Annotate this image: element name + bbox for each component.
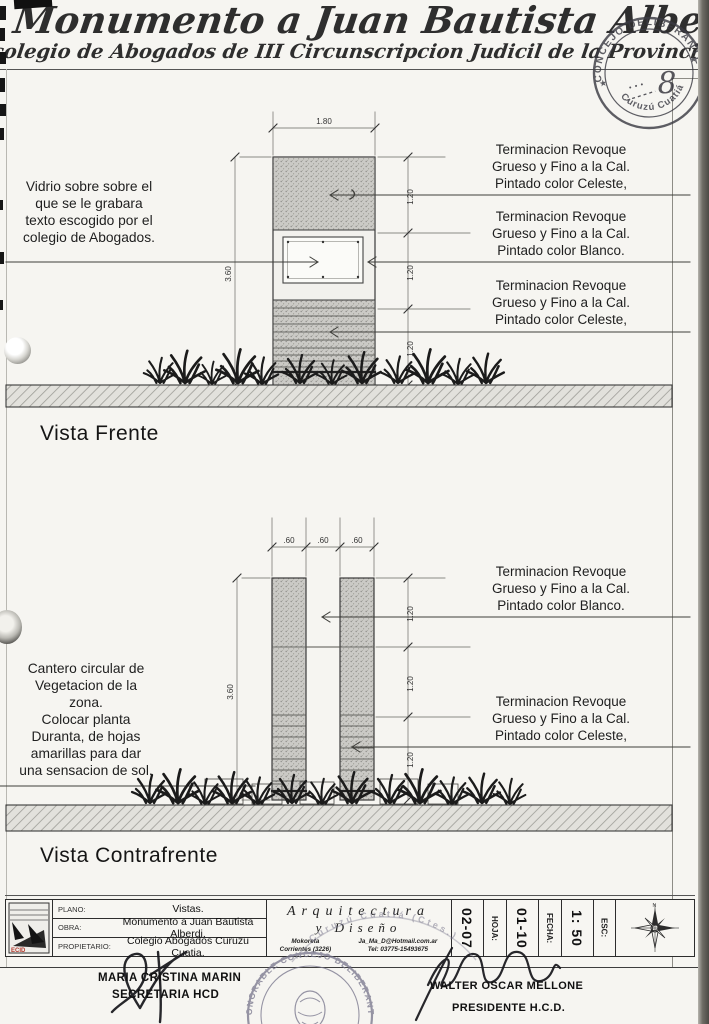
logo-cell: ECID	[6, 900, 52, 956]
scan-edge-mark	[0, 28, 5, 41]
field-label: PLANO:	[52, 905, 110, 914]
back-dim-height: 3.60	[226, 684, 235, 700]
scan-edge-mark	[0, 300, 3, 310]
scan-edge-mark	[0, 200, 3, 210]
back-dim-seg3: 1.20	[406, 752, 415, 768]
back-dim-seg1: 1.20	[406, 606, 415, 622]
scan-edge-mark	[0, 78, 5, 92]
svg-text:Curuzú Cuatiá (Ctes.): Curuzú Cuatiá (Ctes.)	[307, 909, 460, 944]
back-dim-seg2: 1.20	[406, 676, 415, 692]
scale-label: ESC:	[600, 918, 609, 937]
scan-edge-mark	[0, 52, 6, 64]
scan-edge-mark	[0, 252, 4, 264]
svg-text:N: N	[652, 903, 656, 909]
front-top-panel	[274, 158, 375, 230]
front-note-2: Terminacion Revoque Grueso y Fino a la C…	[466, 208, 656, 259]
scan-edge-mark	[0, 104, 6, 116]
back-note-1: Terminacion Revoque Grueso y Fino a la C…	[466, 563, 656, 614]
back-ground-band	[6, 805, 672, 831]
compass-rose-icon: N	[629, 902, 681, 954]
front-dim-height: 3.60	[224, 266, 233, 282]
signature-left-role: SECRETARIA HCD	[112, 989, 219, 1001]
signature-left-name: MARIA CRISTINA MARIN	[98, 972, 241, 984]
compass-cell: N	[615, 900, 694, 956]
scan-page-edge	[698, 0, 709, 1024]
front-note-3: Terminacion Revoque Grueso y Fino a la C…	[466, 277, 656, 328]
scanned-drawing-sheet: Monumento a Juan Bautista Alberdi colegi…	[0, 0, 709, 1024]
hole-punch-top	[4, 337, 31, 364]
back-vegetation	[132, 769, 525, 804]
scan-edge-mark	[0, 6, 6, 20]
front-dim-seg2: 1.20	[406, 265, 415, 281]
field-label: OBRA:	[52, 923, 110, 932]
front-view-label: Vista Frente	[40, 422, 159, 446]
logo-red-text: ECID	[11, 948, 26, 954]
back-dim-w3: .60	[351, 536, 363, 545]
back-left-note: Cantero circular de Vegetacion de la zon…	[0, 660, 172, 779]
back-view-label: Vista Contrafrente	[40, 844, 218, 868]
back-dim-w1: .60	[283, 536, 295, 545]
stamp-bottom-arc-big: Curuzú Cuatiá (Ctes.)	[307, 909, 460, 944]
front-dim-seg1: 1.20	[406, 189, 415, 205]
front-note-1: Terminacion Revoque Grueso y Fino a la C…	[466, 141, 656, 192]
front-dim-width: 1.80	[316, 117, 332, 126]
back-note-2: Terminacion Revoque Grueso y Fino a la C…	[466, 693, 656, 744]
back-dim-w2: .60	[317, 536, 329, 545]
studio-logo: ECID	[8, 902, 50, 954]
back-pillar-left	[272, 578, 306, 800]
back-pillar-right	[340, 578, 374, 800]
front-left-note: Vidrio sobre sobre el que se le grabara …	[8, 178, 170, 246]
front-glass-plaque	[283, 237, 363, 283]
front-ground-band	[6, 385, 672, 407]
scan-edge-mark	[0, 128, 4, 140]
council-stamp-bottom: HONORABLE CONCEJO DELIBERANTE Curuzú Cua…	[230, 890, 510, 1024]
